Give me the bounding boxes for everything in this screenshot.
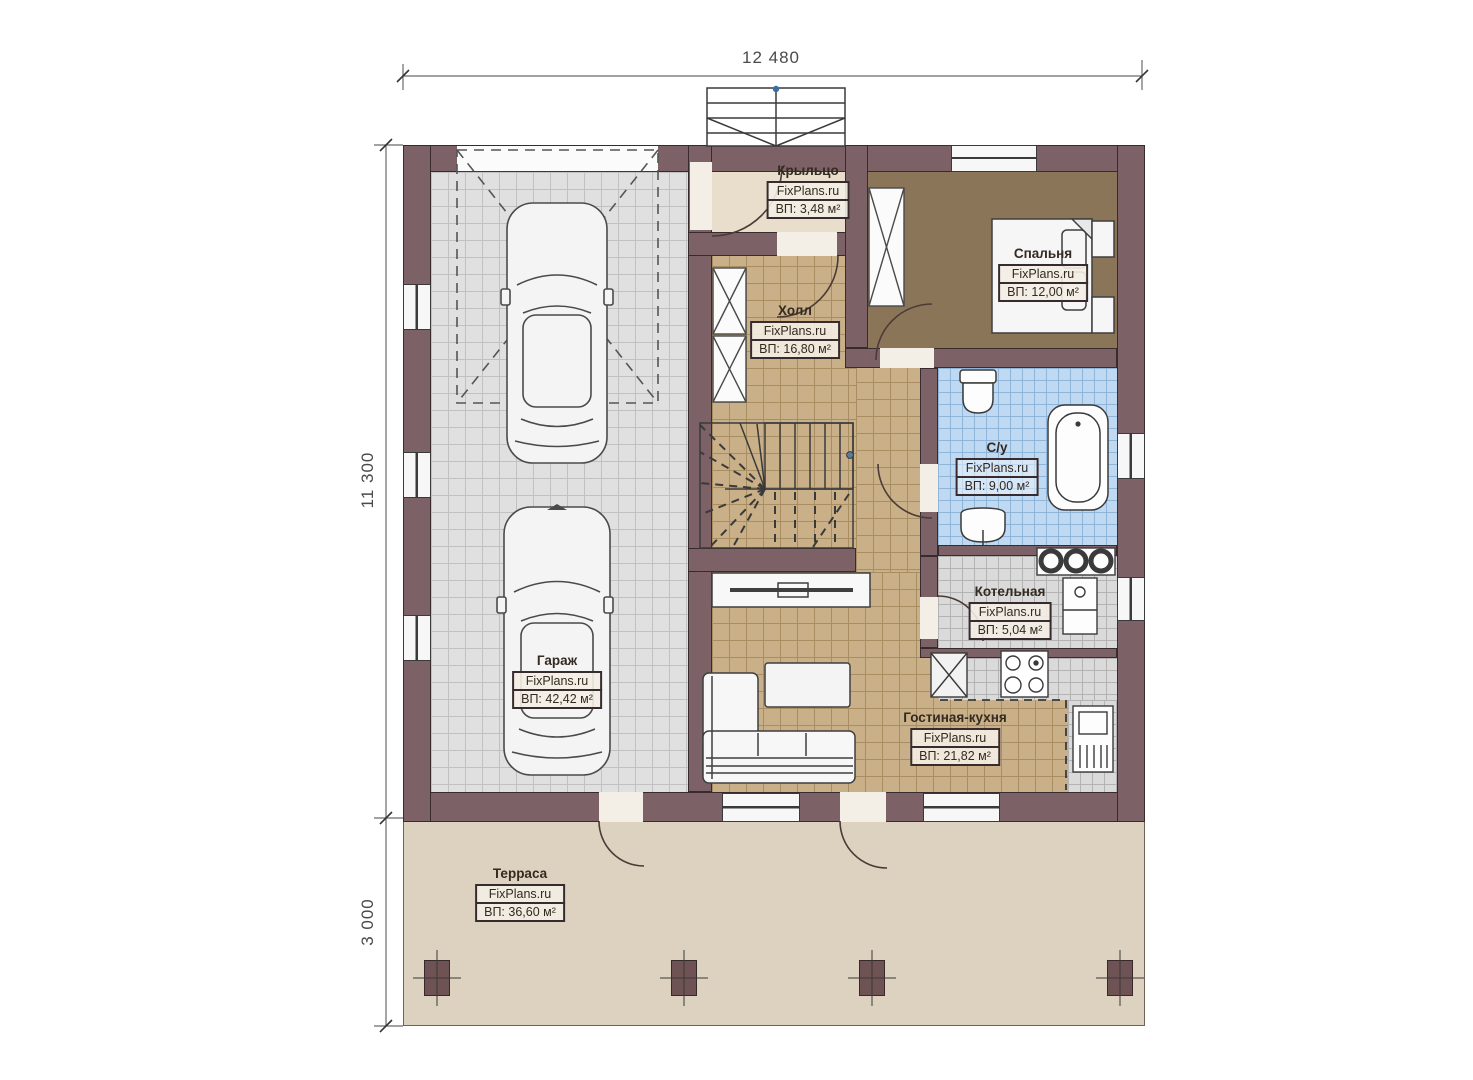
garage-door-opening-top [457,146,658,172]
room-name: Гостиная-кухня [903,710,1006,725]
terrace-column-3 [859,960,885,996]
floor-plan-canvas: 12 480 11 300 3 000 Крыльцо FixPlans.ru … [0,0,1473,1080]
wall-bathroom-west [920,368,938,556]
wall-right [1117,145,1145,822]
wall-bath-boiler [938,545,1117,556]
porch-steps-icon [707,86,845,146]
living-window-2 [923,793,1000,822]
bedroom-window [951,145,1037,172]
room-name: Спальня [998,246,1088,261]
room-label-bedroom: Спальня FixPlans.ru ВП: 12,00 м² [998,246,1088,302]
room-label-garage: Гараж FixPlans.ru ВП: 42,42 м² [512,653,602,709]
room-area: ВП: 5,04 м² [969,620,1052,640]
room-name: Котельная [969,584,1052,599]
room-brand: FixPlans.ru [956,458,1039,478]
room-name: С/у [956,440,1039,455]
room-brand: FixPlans.ru [910,728,1000,748]
room-label-porch: Крыльцо FixPlans.ru ВП: 3,48 м² [767,163,850,219]
room-label-terrace: Терраса FixPlans.ru ВП: 36,60 м² [475,866,565,922]
room-name: Гараж [512,653,602,668]
boiler-window [1117,577,1145,621]
room-area: ВП: 12,00 м² [998,282,1088,302]
terrace-floor [403,818,1145,1026]
room-name: Терраса [475,866,565,881]
garage-window-3 [403,615,431,661]
room-label-living-kitchen: Гостиная-кухня FixPlans.ru ВП: 21,82 м² [903,710,1006,766]
room-area: ВП: 9,00 м² [956,476,1039,496]
wall-boiler-south [920,648,1117,658]
bedroom-door-opening [880,348,934,368]
living-window-1 [722,793,800,822]
garage-terrace-door-opening [599,792,643,822]
room-area: ВП: 16,80 м² [750,339,840,359]
room-label-hall: Холл FixPlans.ru ВП: 16,80 м² [750,303,840,359]
room-area: ВП: 36,60 м² [475,902,565,922]
room-label-bathroom: С/у FixPlans.ru ВП: 9,00 м² [956,440,1039,496]
room-brand: FixPlans.ru [750,321,840,341]
room-name: Крыльцо [767,163,850,178]
entrance-door-opening [690,162,712,230]
room-brand: FixPlans.ru [998,264,1088,284]
terrace-column-1 [424,960,450,996]
dimension-terrace-depth: 3 000 [358,872,378,972]
room-area: ВП: 21,82 м² [910,746,1000,766]
room-brand: FixPlans.ru [475,884,565,904]
room-name: Холл [750,303,840,318]
porch-hall-door-opening [777,232,837,256]
living-terrace-door-opening [840,792,886,822]
terrace-column-4 [1107,960,1133,996]
kitchen-counter-strip-right [1068,700,1117,792]
room-area: ВП: 42,42 м² [512,689,602,709]
room-brand: FixPlans.ru [969,602,1052,622]
boiler-door-opening [920,597,938,639]
room-area: ВП: 3,48 м² [767,199,850,219]
bathroom-window [1117,433,1145,479]
garage-window-2 [403,452,431,498]
garage-window-1 [403,284,431,330]
bathroom-door-opening [920,464,938,512]
wall-hall-south [688,548,856,572]
dimension-top-width: 12 480 [721,48,821,68]
dimension-left-height: 11 300 [358,420,378,540]
terrace-column-2 [671,960,697,996]
kitchen-counter-strip-top [938,658,1117,700]
room-brand: FixPlans.ru [767,181,850,201]
room-label-boiler: Котельная FixPlans.ru ВП: 5,04 м² [969,584,1052,640]
room-brand: FixPlans.ru [512,671,602,691]
